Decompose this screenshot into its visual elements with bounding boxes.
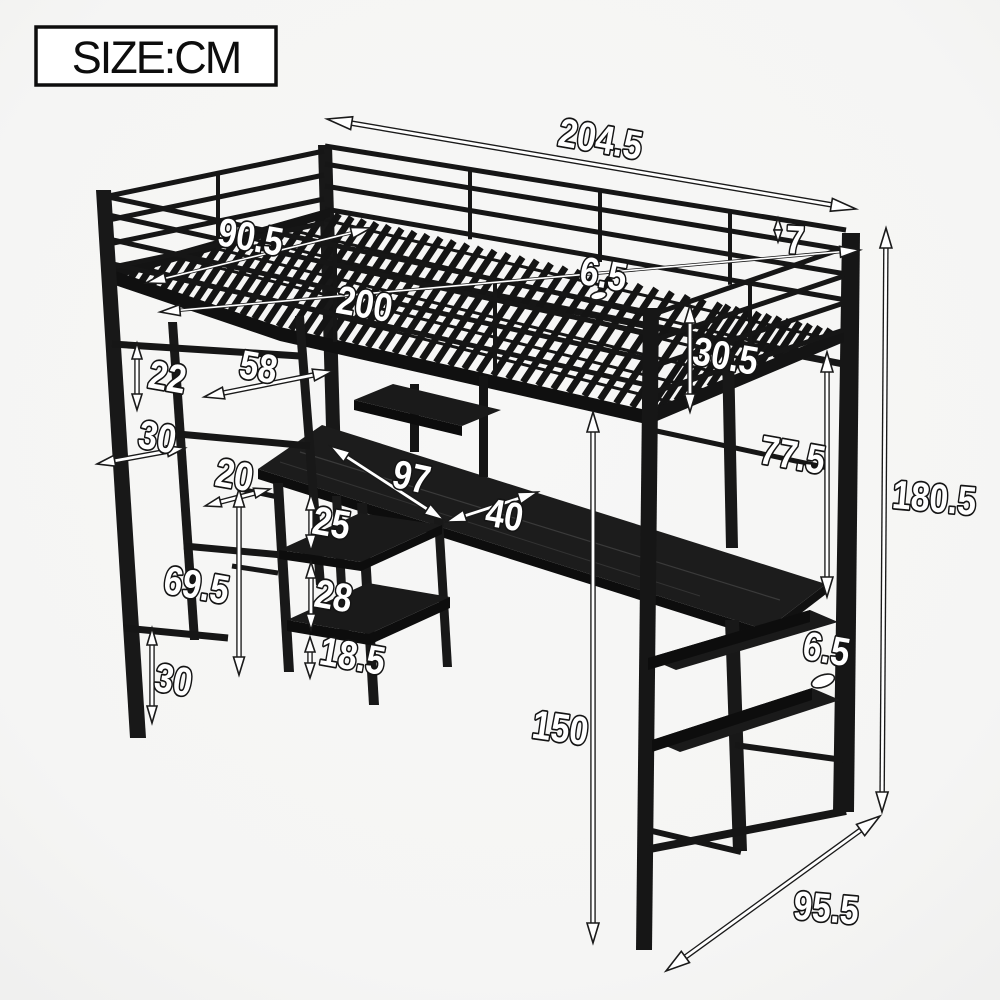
svg-text:22: 22 xyxy=(145,352,190,402)
svg-text:150: 150 xyxy=(530,702,592,754)
svg-text:6.5: 6.5 xyxy=(800,623,854,675)
svg-text:40: 40 xyxy=(482,490,527,540)
svg-text:58: 58 xyxy=(236,342,281,392)
svg-text:30: 30 xyxy=(135,412,180,462)
svg-text:25: 25 xyxy=(309,498,354,548)
svg-text:95.5: 95.5 xyxy=(792,883,861,933)
svg-text:6.5: 6.5 xyxy=(577,248,631,300)
svg-text:28: 28 xyxy=(311,571,356,621)
svg-text:SIZE:CM: SIZE:CM xyxy=(72,32,241,83)
svg-text:30: 30 xyxy=(151,655,196,705)
svg-text:180.5: 180.5 xyxy=(890,472,978,524)
svg-text:7: 7 xyxy=(785,217,806,262)
svg-text:20: 20 xyxy=(212,450,257,500)
